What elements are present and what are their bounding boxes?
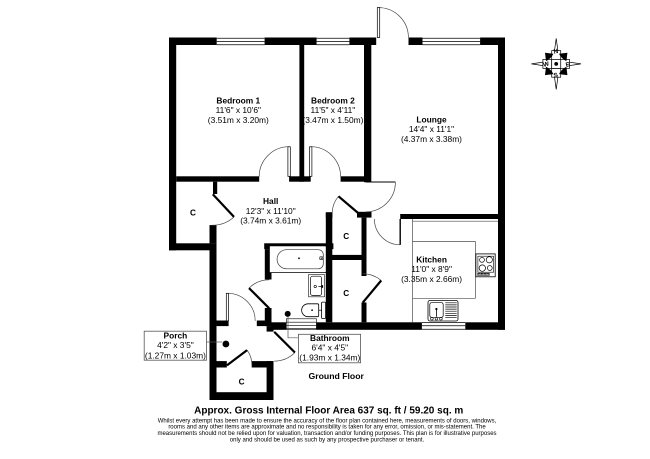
- svg-text:11'5" x 4'11": 11'5" x 4'11": [311, 105, 356, 115]
- svg-text:(3.35m x 2.66m): (3.35m x 2.66m): [401, 274, 462, 284]
- svg-text:Ground Floor: Ground Floor: [308, 371, 364, 381]
- svg-text:11'0" x 8'9": 11'0" x 8'9": [411, 264, 452, 274]
- svg-text:C: C: [343, 289, 349, 298]
- svg-text:C: C: [190, 209, 196, 218]
- svg-text:11'6" x 10'6": 11'6" x 10'6": [216, 105, 261, 115]
- svg-text:4'2" x 3'5": 4'2" x 3'5": [157, 340, 194, 350]
- svg-text:rooms and any other items are: rooms and any other items are approximat…: [168, 425, 486, 431]
- svg-text:(1.27m x 1.03m): (1.27m x 1.03m): [145, 351, 206, 361]
- svg-text:Bedroom 2: Bedroom 2: [311, 96, 355, 106]
- svg-text:(1.93m x 1.34m): (1.93m x 1.34m): [299, 353, 360, 363]
- svg-text:(3.51m x 3.20m): (3.51m x 3.20m): [208, 115, 269, 125]
- svg-text:14'4" x 11'1": 14'4" x 11'1": [409, 124, 454, 134]
- svg-text:only and should be used as suc: only and should be used as such by any p…: [230, 438, 425, 444]
- svg-text:Porch: Porch: [164, 330, 188, 340]
- svg-text:Approx. Gross Internal Floor A: Approx. Gross Internal Floor Area 637 sq…: [194, 406, 463, 417]
- svg-text:C: C: [343, 232, 349, 241]
- svg-text:Lounge: Lounge: [416, 114, 447, 124]
- svg-text:(3.74m x 3.61m): (3.74m x 3.61m): [240, 216, 301, 226]
- svg-text:12'3" x 11'10": 12'3" x 11'10": [246, 206, 296, 216]
- svg-text:C: C: [239, 377, 245, 386]
- svg-text:measurements should not be rel: measurements should not be relied upon f…: [157, 431, 496, 437]
- svg-text:Kitchen: Kitchen: [416, 254, 447, 264]
- svg-text:(4.37m x 3.38m): (4.37m x 3.38m): [401, 134, 462, 144]
- svg-text:Whilst every attempt has been: Whilst every attempt has been made to en…: [158, 418, 497, 424]
- svg-text:6'4" x 4'5": 6'4" x 4'5": [311, 343, 348, 353]
- svg-text:Hall: Hall: [263, 196, 278, 206]
- svg-text:Bathroom: Bathroom: [310, 333, 350, 343]
- svg-text:Bedroom 1: Bedroom 1: [216, 96, 260, 106]
- svg-text:(3.47m x 1.50m): (3.47m x 1.50m): [302, 115, 363, 125]
